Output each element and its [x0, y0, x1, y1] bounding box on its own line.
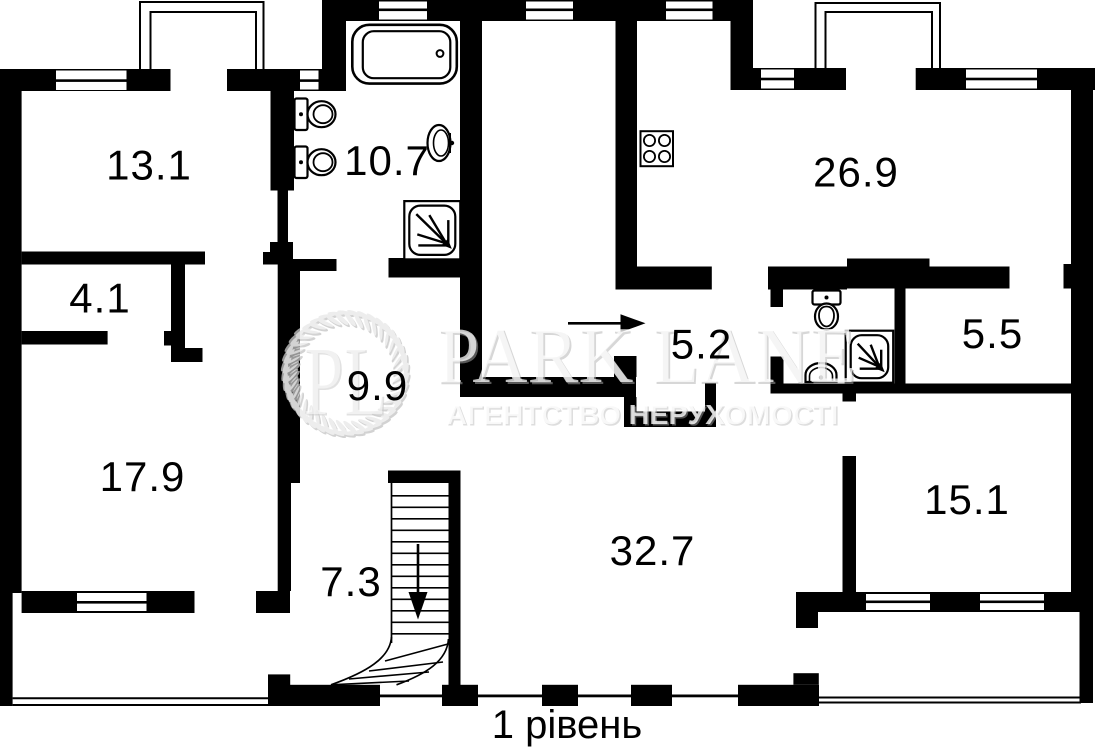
svg-text:10.7: 10.7 [344, 137, 430, 184]
svg-text:9.9: 9.9 [347, 362, 408, 409]
svg-text:1 рівень: 1 рівень [492, 703, 642, 747]
svg-text:32.7: 32.7 [610, 527, 696, 574]
svg-text:5.2: 5.2 [671, 321, 732, 368]
svg-text:5.5: 5.5 [962, 310, 1023, 357]
svg-text:4.1: 4.1 [69, 275, 130, 322]
svg-text:7.3: 7.3 [320, 558, 381, 605]
svg-text:АГЕНТСТВО НЕРУХОМОСТІ: АГЕНТСТВО НЕРУХОМОСТІ [446, 399, 838, 430]
svg-text:13.1: 13.1 [106, 142, 192, 189]
svg-text:PARK LANE: PARK LANE [437, 310, 856, 400]
svg-text:15.1: 15.1 [924, 476, 1010, 523]
svg-text:26.9: 26.9 [813, 149, 899, 196]
svg-text:17.9: 17.9 [100, 453, 186, 500]
